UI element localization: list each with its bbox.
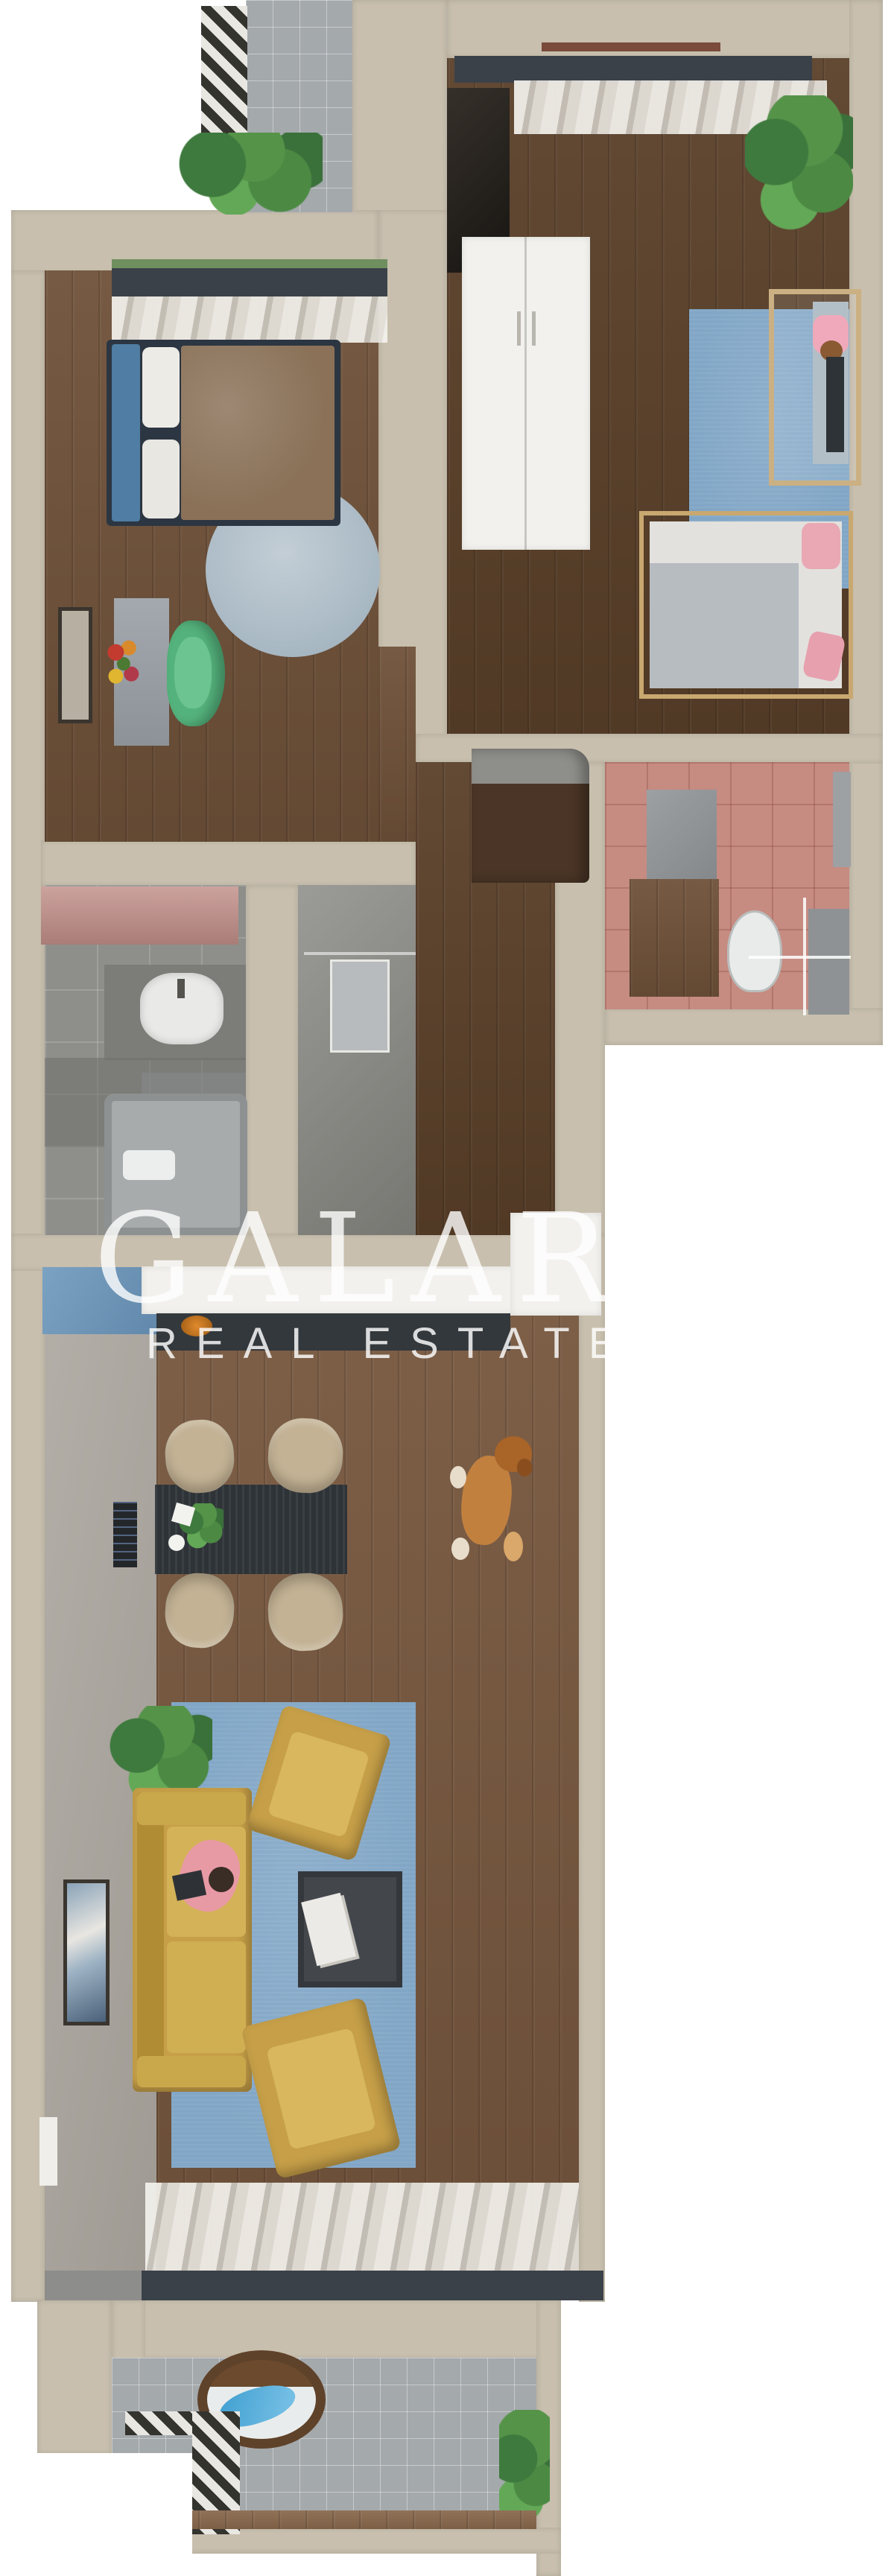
bed-headboard — [112, 344, 140, 521]
smallbath-sink — [140, 973, 223, 1044]
dog-paw — [450, 1466, 466, 1488]
person-reading — [170, 1834, 244, 1916]
sofa-back — [137, 1792, 164, 2087]
kids-window-band — [454, 56, 812, 83]
kids-curtain-rod — [542, 42, 720, 51]
faucet-icon — [177, 979, 185, 998]
master-window-band — [112, 268, 387, 296]
chair-seat — [174, 637, 212, 708]
wall-kids-right — [849, 0, 883, 1045]
wall-living-right — [579, 1234, 605, 2302]
sofa-cushion — [167, 1941, 246, 2053]
hall-closet-shelf-line — [304, 952, 416, 955]
bath-wood-mat — [630, 879, 719, 997]
living-wall-art — [63, 1879, 110, 2025]
kids-plant — [745, 95, 853, 244]
master-curtains — [112, 296, 387, 343]
master-bedroom-floor-ext — [378, 647, 416, 842]
bed-pillow-pink — [802, 523, 840, 569]
floor-plan-render: GALARDO REAL ESTATE — [0, 0, 894, 2576]
living-curtains — [145, 2183, 579, 2271]
bed-pillow — [142, 440, 180, 518]
master-green-chair — [167, 621, 225, 726]
master-pink-bench — [41, 886, 238, 945]
bathtub-faucet-icon — [123, 1150, 175, 1180]
wardrobe-handle-icon — [532, 311, 536, 346]
sofa-armrest — [137, 1792, 246, 1825]
desk-flowers — [103, 635, 146, 692]
dog-paw — [504, 1532, 523, 1561]
living-window-band-left — [45, 2271, 142, 2300]
dog — [448, 1436, 539, 1569]
wall-master-bottom — [41, 840, 416, 886]
wardrobe-handle-icon — [517, 311, 521, 346]
bath-vanity — [647, 790, 717, 881]
mirror-reflection-figure — [826, 357, 844, 452]
coffee-table-books — [301, 1893, 356, 1966]
shower-tray — [808, 909, 849, 1015]
shower-glass — [749, 956, 851, 959]
smallbath-bathtub — [104, 1094, 247, 1235]
master-wall-art — [58, 607, 92, 723]
bath-cabinet — [833, 772, 851, 867]
balcony-wood-strip — [171, 2510, 536, 2529]
wall-bath-closet-divider — [246, 885, 298, 1237]
armchair-seat — [266, 2028, 376, 2150]
kids-canopy-bed — [639, 511, 853, 699]
living-window-band — [142, 2271, 603, 2300]
table-plate — [168, 1535, 185, 1551]
sofa-armrest — [137, 2056, 246, 2087]
hall-dark-wardrobe — [472, 749, 589, 883]
kids-white-wardrobe — [462, 237, 590, 550]
hall-closet — [298, 885, 416, 1235]
kitchen-lower-cabinets — [156, 1313, 510, 1351]
kids-standing-mirror — [769, 289, 861, 486]
bed-pillow — [142, 347, 180, 428]
master-bed — [107, 340, 340, 526]
hall-closet-mirror — [330, 959, 390, 1053]
fridge — [510, 1213, 601, 1316]
cooktop-pot — [181, 1316, 212, 1336]
wall-left-column — [11, 270, 45, 2302]
sideboard — [113, 1502, 137, 1567]
bed-duvet — [181, 346, 335, 520]
bed-blanket — [650, 563, 799, 688]
coffee-table — [298, 1871, 402, 1987]
top-balcony-plant — [170, 133, 323, 215]
armchair-seat — [267, 1730, 370, 1838]
plan-cutout — [0, 2453, 192, 2576]
toilet-icon — [727, 910, 782, 992]
person-hair — [209, 1867, 234, 1892]
dog-paw — [451, 1538, 469, 1560]
wall-balcony2-left — [37, 2300, 112, 2455]
dog-ear — [517, 1459, 532, 1476]
door-handle — [39, 2117, 57, 2186]
